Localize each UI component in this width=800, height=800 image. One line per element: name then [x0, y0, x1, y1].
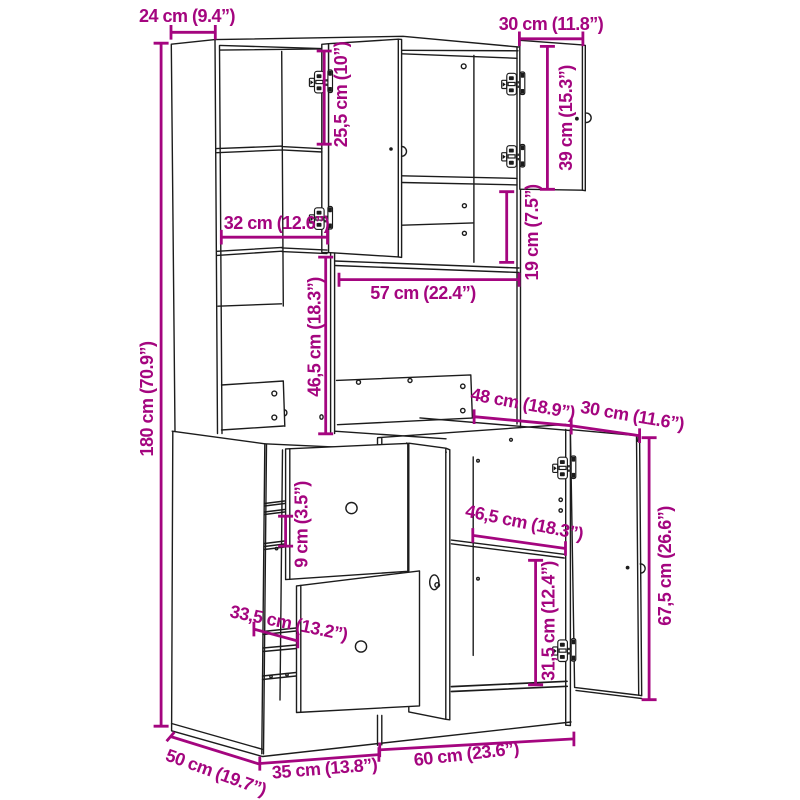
svg-text:180 cm (70.9”): 180 cm (70.9”)	[137, 341, 157, 457]
svg-text:46,5 cm (18.3”): 46,5 cm (18.3”)	[305, 277, 325, 397]
svg-text:30 cm (11.8”): 30 cm (11.8”)	[499, 14, 604, 34]
svg-text:31,5 cm (12.4”): 31,5 cm (12.4”)	[539, 561, 559, 681]
svg-text:32 cm (12.6”): 32 cm (12.6”)	[224, 213, 330, 233]
svg-text:24 cm (9.4”): 24 cm (9.4”)	[139, 6, 236, 26]
svg-text:67,5 cm (26.6”): 67,5 cm (26.6”)	[655, 506, 675, 626]
svg-text:57 cm (22.4”): 57 cm (22.4”)	[370, 283, 476, 303]
svg-text:19 cm (7.5”): 19 cm (7.5”)	[522, 184, 542, 281]
svg-text:9 cm (3.5”): 9 cm (3.5”)	[292, 481, 312, 568]
svg-text:25,5 cm (10”): 25,5 cm (10”)	[331, 41, 351, 147]
svg-text:39 cm (15.3”): 39 cm (15.3”)	[556, 65, 576, 171]
